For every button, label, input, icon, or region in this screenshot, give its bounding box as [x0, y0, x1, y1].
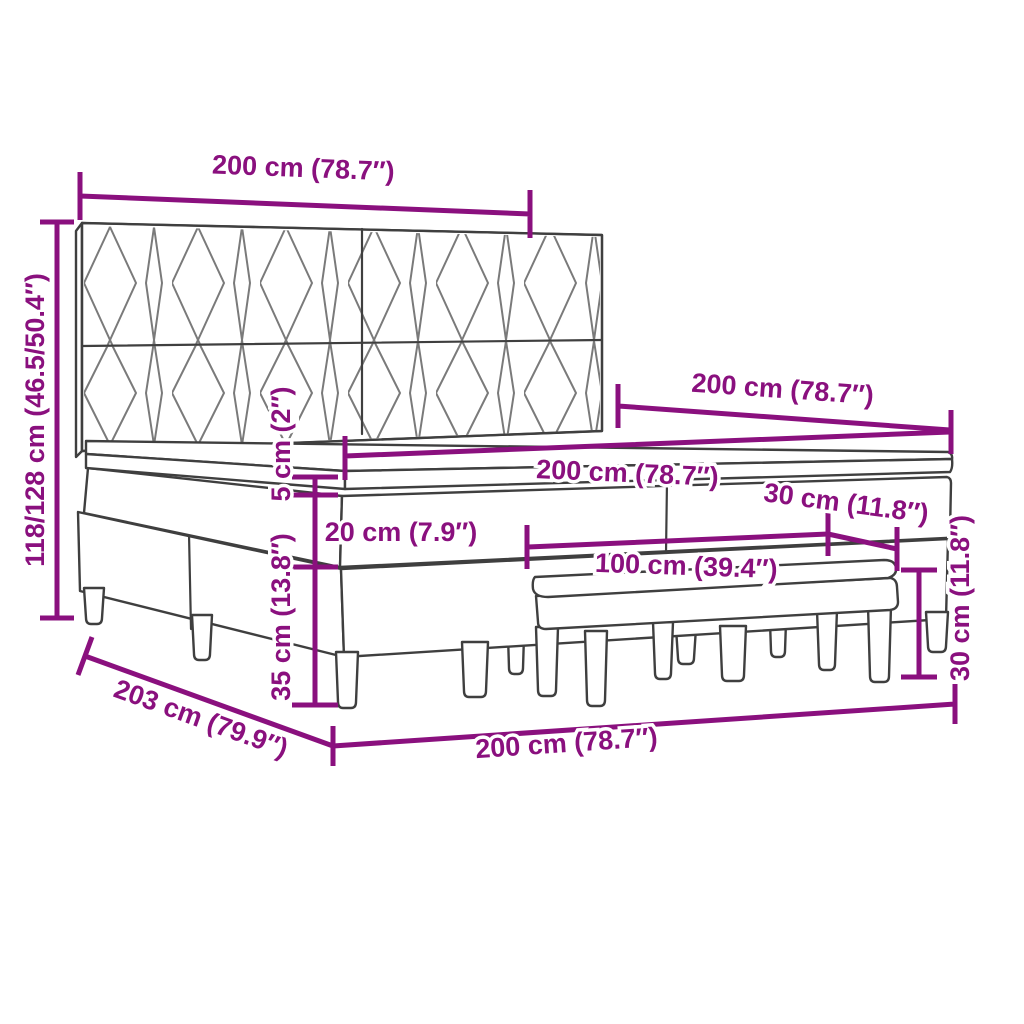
bench-leg: [817, 610, 837, 670]
dim-bench-length-label: 100 cm (39.4″): [595, 548, 778, 584]
bed-line-art: [76, 223, 952, 708]
bench-leg: [536, 627, 558, 696]
dim-base-height-label: 35 cm (13.8″): [266, 533, 296, 701]
headboard: [76, 223, 604, 457]
bed-leg: [192, 615, 212, 660]
dim-upper-box-height-label: 20 cm (7.9″): [325, 517, 478, 547]
bench-leg: [868, 606, 891, 682]
bed-leg: [720, 626, 746, 681]
dim-height-total: 118/128 cm (46.5/50.4″): [20, 222, 74, 618]
bed-leg: [84, 588, 104, 624]
bench-leg: [585, 631, 607, 706]
dim-width-bottom-label: 200 cm (78.7″): [474, 722, 658, 764]
dim-width-top-label: 200 cm (78.7″): [212, 150, 396, 187]
bed-leg: [462, 642, 488, 697]
bed-leg: [336, 652, 358, 708]
dim-frame-depth-label: 203 cm (79.9″): [110, 674, 292, 764]
diagram-canvas: 200 cm (78.7″) 118/128 cm (46.5/50.4″) 2…: [0, 0, 1024, 1024]
bed-dimension-diagram: 200 cm (78.7″) 118/128 cm (46.5/50.4″) 2…: [0, 0, 1024, 1024]
dim-height-total-label: 118/128 cm (46.5/50.4″): [20, 273, 50, 567]
dim-length-top-label: 200 cm (78.7″): [691, 368, 875, 411]
headboard-pattern-top-row: [82, 225, 604, 347]
dim-bench-height-label: 30 cm (11.8″): [945, 515, 975, 681]
bench-leg: [653, 622, 673, 679]
dim-mattress-width-label: 200 cm (78.7″): [536, 454, 720, 492]
dim-mattress-thickness-label: 5 cm (2″): [266, 387, 296, 502]
dim-width-bottom: 200 cm (78.7″): [333, 684, 955, 766]
